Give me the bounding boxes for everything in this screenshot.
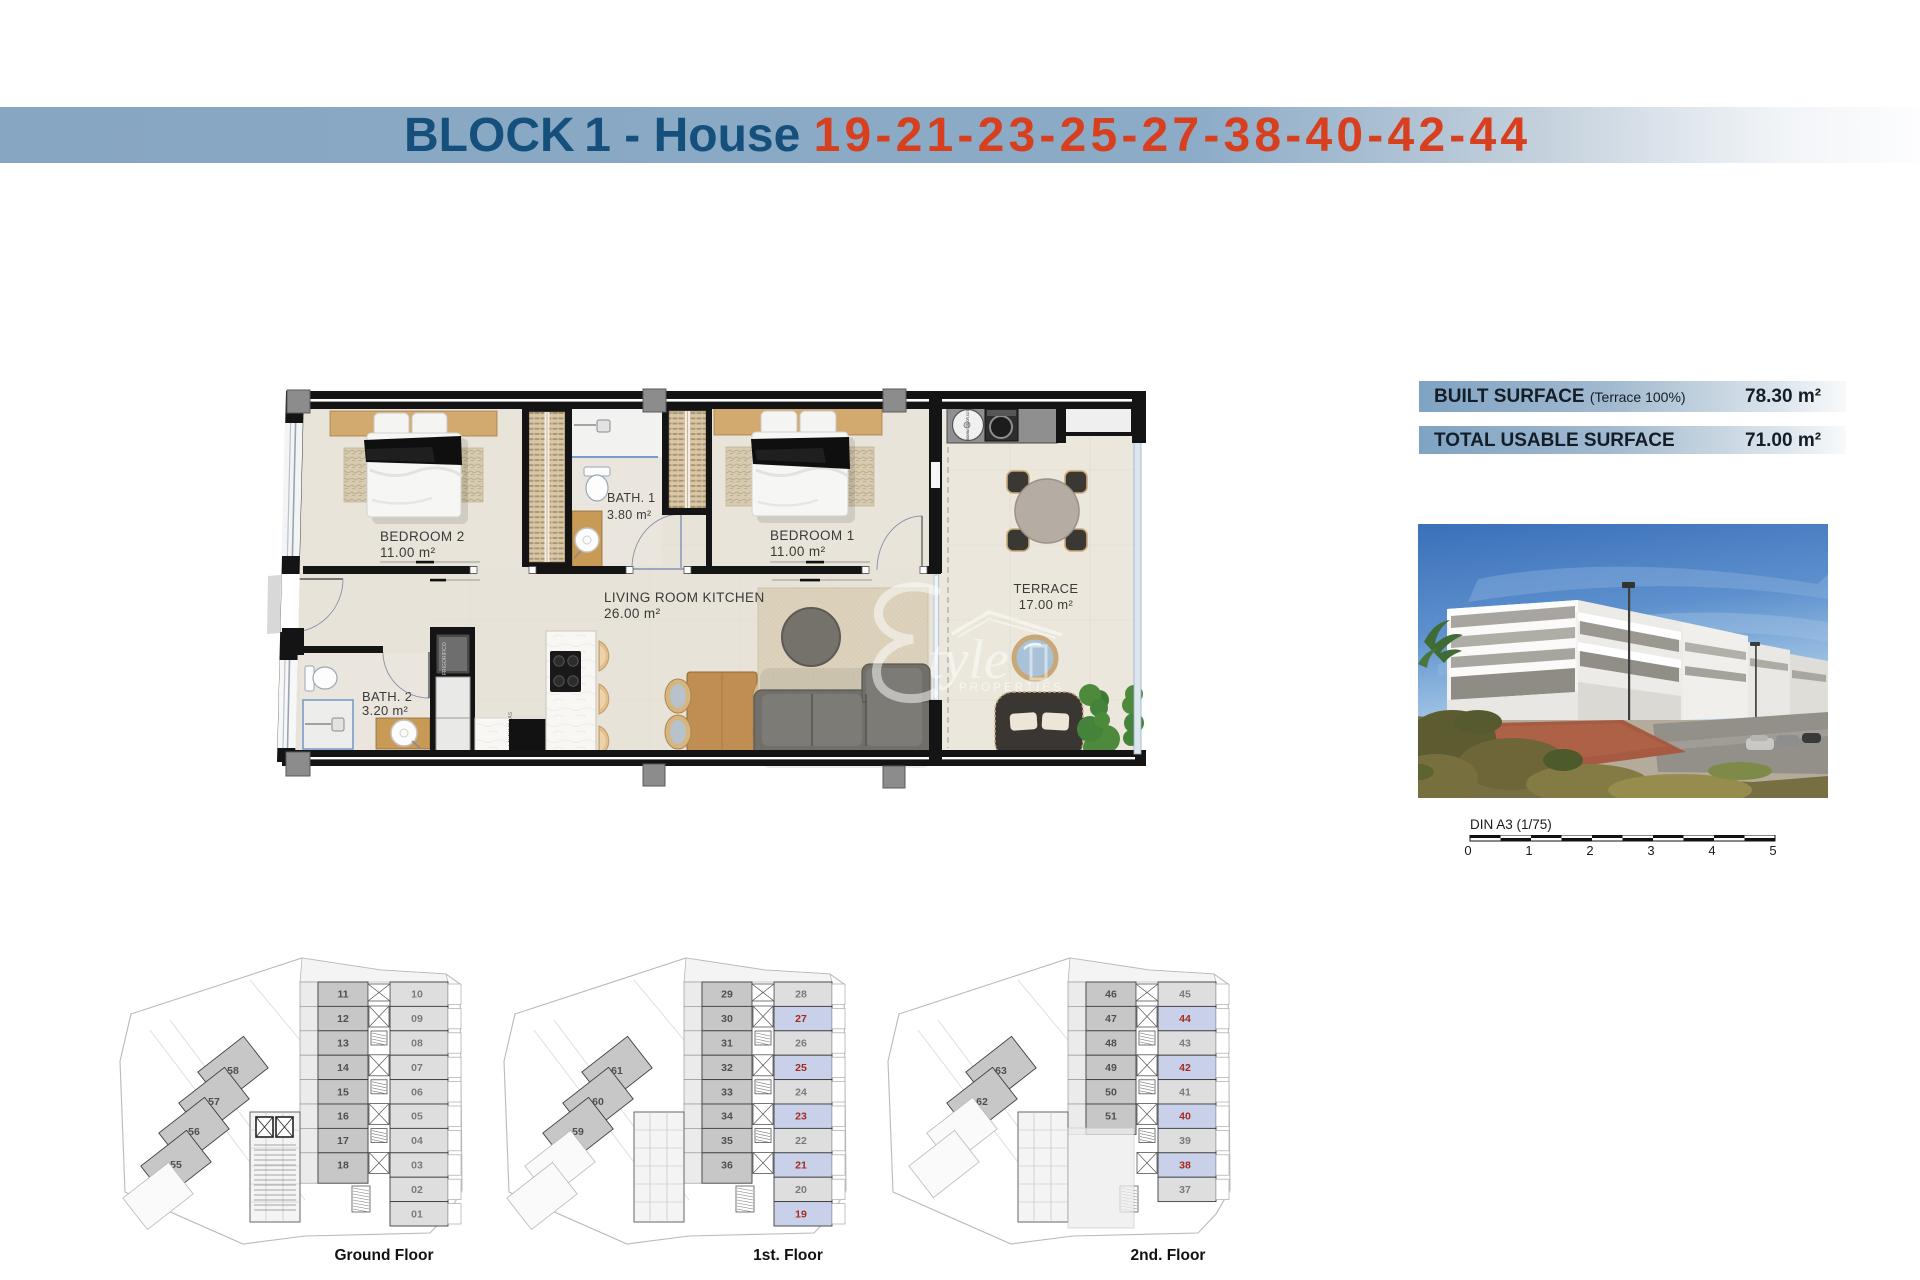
svg-text:63: 63 (995, 1065, 1007, 1077)
svg-text:17: 17 (337, 1135, 349, 1147)
svg-text:23: 23 (795, 1111, 807, 1123)
svg-text:43: 43 (1179, 1038, 1191, 1050)
svg-text:06: 06 (411, 1086, 423, 1098)
svg-text:04: 04 (411, 1135, 423, 1147)
svg-text:3.20 m²: 3.20 m² (362, 703, 409, 718)
svg-text:38: 38 (1179, 1160, 1191, 1172)
svg-text:31: 31 (721, 1038, 733, 1050)
svg-text:BOMBA CALOR ACS: BOMBA CALOR ACS (966, 410, 970, 440)
svg-text:BATH. 1: BATH. 1 (607, 491, 655, 505)
svg-text:11.00 m²: 11.00 m² (380, 545, 436, 560)
svg-text:11: 11 (337, 989, 348, 1001)
svg-text:40: 40 (1179, 1111, 1191, 1123)
svg-text:28: 28 (795, 989, 807, 1001)
svg-text:27: 27 (795, 1013, 807, 1025)
svg-text:60: 60 (592, 1096, 604, 1108)
svg-text:58: 58 (227, 1065, 239, 1077)
svg-text:02: 02 (411, 1184, 423, 1196)
svg-text:08: 08 (411, 1038, 423, 1050)
svg-text:26: 26 (795, 1038, 807, 1050)
svg-text:18: 18 (337, 1160, 349, 1172)
svg-text:20: 20 (795, 1184, 807, 1196)
svg-text:57: 57 (208, 1096, 220, 1108)
svg-text:25: 25 (795, 1062, 807, 1074)
svg-text:33: 33 (721, 1086, 733, 1098)
svg-text:10: 10 (411, 989, 423, 1001)
svg-text:56: 56 (188, 1126, 200, 1138)
svg-text:46: 46 (1105, 989, 1117, 1001)
svg-text:09: 09 (411, 1013, 423, 1025)
svg-text:26.00 m²: 26.00 m² (604, 606, 661, 621)
svg-text:17.00 m²: 17.00 m² (1019, 597, 1074, 612)
svg-text:47: 47 (1105, 1013, 1117, 1025)
svg-text:LIVING ROOM KITCHEN: LIVING ROOM KITCHEN (604, 590, 765, 605)
svg-text:14: 14 (337, 1062, 349, 1074)
svg-text:03: 03 (411, 1160, 423, 1172)
svg-text:BEDROOM 2: BEDROOM 2 (380, 529, 465, 544)
svg-text:05: 05 (411, 1111, 423, 1123)
svg-text:45: 45 (1179, 989, 1191, 1001)
svg-text:12: 12 (337, 1013, 349, 1025)
svg-text:50: 50 (1105, 1086, 1117, 1098)
svg-text:37: 37 (1179, 1184, 1191, 1196)
svg-text:19: 19 (795, 1208, 807, 1220)
svg-text:48: 48 (1105, 1038, 1117, 1050)
svg-text:TERRACE: TERRACE (1014, 581, 1079, 596)
svg-text:BEDROOM 1: BEDROOM 1 (770, 528, 855, 543)
svg-text:51: 51 (1105, 1111, 1117, 1123)
svg-text:16: 16 (337, 1111, 349, 1123)
svg-text:34: 34 (721, 1111, 733, 1123)
svg-text:21: 21 (795, 1160, 807, 1172)
svg-text:24: 24 (795, 1086, 807, 1098)
svg-text:22: 22 (795, 1135, 807, 1147)
svg-text:42: 42 (1179, 1062, 1191, 1074)
svg-text:61: 61 (611, 1065, 623, 1077)
svg-text:15: 15 (337, 1086, 349, 1098)
svg-text:13: 13 (337, 1038, 349, 1050)
svg-text:41: 41 (1179, 1086, 1191, 1098)
svg-text:FRIGORIFICO: FRIGORIFICO (442, 642, 448, 675)
svg-text:49: 49 (1105, 1062, 1117, 1074)
svg-text:3.80 m²: 3.80 m² (607, 508, 651, 522)
svg-text:35: 35 (721, 1135, 733, 1147)
svg-text:30: 30 (721, 1013, 733, 1025)
svg-text:PROPERTIES: PROPERTIES (959, 682, 1064, 694)
svg-text:11.00 m²: 11.00 m² (770, 544, 826, 559)
svg-text:29: 29 (721, 989, 733, 1001)
svg-text:01: 01 (411, 1208, 423, 1220)
svg-text:44: 44 (1179, 1013, 1191, 1025)
svg-text:32: 32 (721, 1062, 733, 1074)
svg-text:36: 36 (721, 1160, 733, 1172)
svg-text:07: 07 (411, 1062, 423, 1074)
svg-text:39: 39 (1179, 1135, 1191, 1147)
